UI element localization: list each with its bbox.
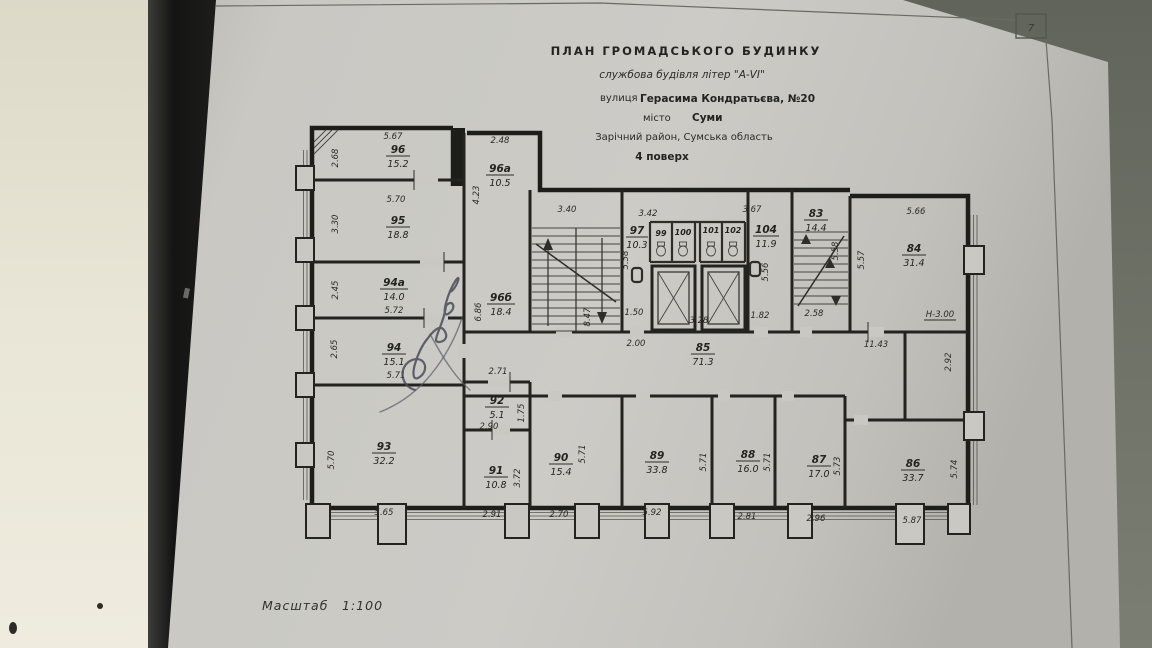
room-area: 32.2 [373,456,394,467]
scale-value: 1:100 [342,598,383,613]
dimension: 6.86 [474,302,484,322]
wall-background [0,0,160,648]
dimension: 1.50 [625,308,644,318]
room-number: 83 [809,208,824,220]
dimension: 11.43 [864,340,888,350]
room-area: 15.1 [383,357,404,368]
dimension: 5.56 [761,262,771,282]
dimension: 5.92 [643,508,662,518]
room-area: 10.8 [485,480,506,491]
room-number: 94а [383,277,405,289]
room-number: 92 [490,395,505,407]
dimension: 2.00 [627,339,646,349]
height-mark: Н-3.00 [926,310,954,320]
room-area: 14.0 [383,292,404,303]
room-number: 91 [489,465,504,477]
room-number: 96 [391,144,406,156]
floor-plan-svg: 7 ПЛАН ГРОМАДСЬКОГО БУДИНКУ службова буд… [0,0,1152,648]
dimension: 2.81 [738,512,757,522]
room-number: 87 [812,454,827,466]
room-area: 16.0 [737,464,758,475]
room-number: 97 [630,225,645,237]
room-number: 96а [489,163,511,175]
dimension: 5.70 [387,195,406,205]
dimension: 2.71 [489,367,508,377]
room-number: 84 [907,243,922,255]
room-number: 85 [696,342,711,354]
title-line1: ПЛАН ГРОМАДСЬКОГО БУДИНКУ [551,44,822,58]
scale-note: Масштаб 1:100 [262,598,383,613]
room-area: 15.4 [550,467,571,478]
wall-speck [9,622,17,634]
room-area: 71.3 [692,357,713,368]
room-area: 14.4 [805,223,826,234]
room-number: 95 [391,215,406,227]
room-area: 15.2 [387,159,408,170]
floor-line: 4 поверх [635,151,689,163]
room-number: 93 [377,441,392,453]
room-number: 100 [675,228,692,237]
dimension: 2.68 [331,148,341,168]
street-label: вулиця [600,93,638,104]
dimension: 2.48 [491,136,511,146]
dimension: 5.66 [907,207,927,217]
dimension: 2.92 [944,353,954,372]
dimension: 3.30 [331,215,341,234]
room-area: 17.0 [808,469,829,480]
room-number: 96б [490,292,512,304]
room-number: 86 [906,458,921,470]
room-number: 99 [655,229,667,238]
dimension: 8.47 [583,307,593,327]
dimension: 4.23 [472,186,482,205]
room-area: 10.3 [626,240,647,251]
room-number: 88 [741,449,756,461]
dimension: 5.65 [375,508,394,518]
dimension: 5.67 [384,132,404,142]
room-number: 102 [725,226,742,235]
room-area: 11.9 [755,239,776,250]
room-area: 33.7 [902,473,923,484]
dimension: 5.71 [699,453,709,472]
dimension: 5.57 [857,250,867,270]
dimension: 2.90 [480,422,499,432]
dimension: 5.70 [327,451,337,470]
dimension: 2.58 [805,309,825,319]
room-number: 94 [387,342,402,354]
dimension: 5.71 [763,453,773,472]
room-area: 5.1 [489,410,504,421]
photograph-of-floor-plan: 7 ПЛАН ГРОМАДСЬКОГО БУДИНКУ службова буд… [0,0,1152,648]
dimension: 5.58 [621,250,631,270]
dimension: 2.45 [331,281,341,300]
dimension: 2.96 [807,514,827,524]
scale-label: Масштаб [262,598,328,613]
dimension: 5.58 [831,241,841,261]
street-value: Герасима Кондратьєва, №20 [640,93,815,105]
room-number: 101 [703,226,720,235]
dimension: 5.73 [833,457,843,476]
dimension: 2.65 [330,340,340,359]
dimension: 3.67 [743,205,763,215]
page-marker: 7 [1028,23,1035,34]
room-area: 18.8 [387,230,408,241]
dimension: 3.72 [513,469,523,488]
dimension: 5.72 [385,306,404,316]
city-label: місто [643,112,671,124]
room-number: 104 [755,224,777,236]
room-number: 90 [554,452,569,464]
district-line: Зарічний район, Сумська область [595,131,773,143]
city-value: Суми [692,112,723,124]
dimension: 2.91 [483,510,502,520]
room-area: 10.5 [489,178,510,189]
room-number: 89 [650,450,665,462]
dimension: 3.40 [558,205,577,215]
dimension: 3.42 [639,209,658,219]
dimension: 5.87 [903,516,923,526]
dimension: 5.71 [578,445,588,464]
dimension: 3.28 [690,316,710,326]
title-line2: службова будівля літер "А-VI" [599,69,765,81]
room-area: 31.4 [903,258,924,269]
dimension: 5.74 [950,460,960,479]
dimension: 1.82 [751,311,770,321]
wall-speck [97,603,103,609]
room-area: 33.8 [646,465,667,476]
dimension: 1.75 [517,404,527,423]
dimension: 2.70 [550,510,569,520]
room-area: 18.4 [490,307,511,318]
